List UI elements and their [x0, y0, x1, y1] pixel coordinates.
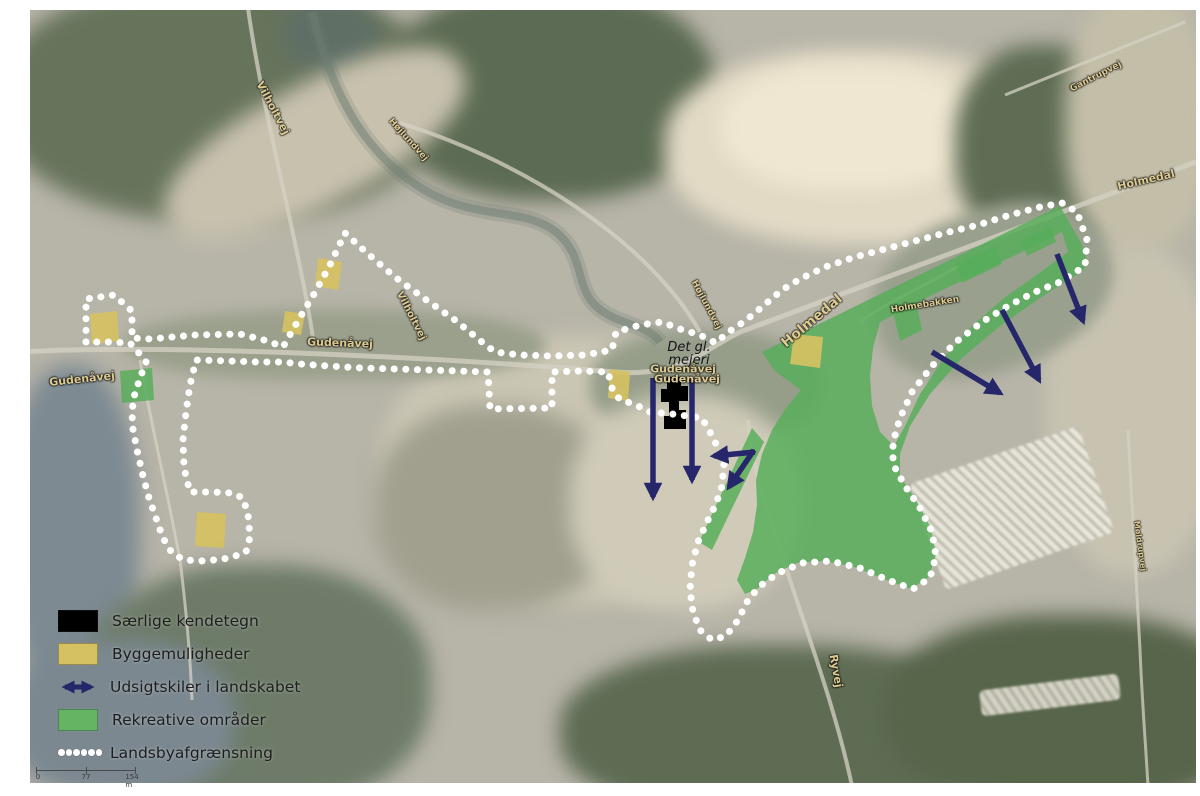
legend-row-viewwedge: Udsigtskiler i landskabet [58, 670, 300, 703]
scale-start: 0 [36, 773, 40, 781]
dotted-line-icon [58, 749, 102, 756]
special-feature-layer [661, 377, 688, 429]
legend-row-recreation: Rekreative områder [58, 703, 300, 736]
view-wedge-arrow [1002, 310, 1039, 380]
legend-label: Landsbyafgrænsning [110, 744, 273, 762]
double-arrow-icon [58, 676, 98, 698]
scale-bar: 0 77 154 m [36, 766, 136, 782]
scale-end: 154 m [125, 773, 138, 789]
village-plan-map: Det gl. mejeri VilholtvejHøjlundvejGuden… [0, 0, 1200, 796]
legend-label: Rekreative områder [112, 711, 266, 729]
building-opportunity-area [90, 311, 119, 344]
special-feature-old-dairy [661, 377, 688, 429]
legend-swatch-tan [58, 643, 98, 665]
recreational-area [737, 206, 1086, 594]
legend-swatch-green [58, 709, 98, 731]
scale-mid: 77 [82, 773, 91, 781]
building-opportunity-layer [90, 258, 823, 548]
legend-label: Særlige kendetegn [112, 612, 259, 630]
recreational-areas-layer [120, 206, 1086, 594]
river [312, 12, 660, 342]
legend-row-special: Særlige kendetegn [58, 604, 300, 637]
legend-label: Byggemuligheder [112, 645, 250, 663]
legend-label: Udsigtskiler i landskabet [110, 678, 300, 696]
legend-row-building: Byggemuligheder [58, 637, 300, 670]
legend-swatch-black [58, 610, 98, 632]
building-opportunity-area [790, 334, 823, 368]
legend-row-boundary: Landsbyafgrænsning [58, 736, 300, 769]
map-legend: Særlige kendetegn Byggemuligheder Udsigt… [58, 604, 300, 769]
building-opportunity-area [195, 512, 226, 548]
